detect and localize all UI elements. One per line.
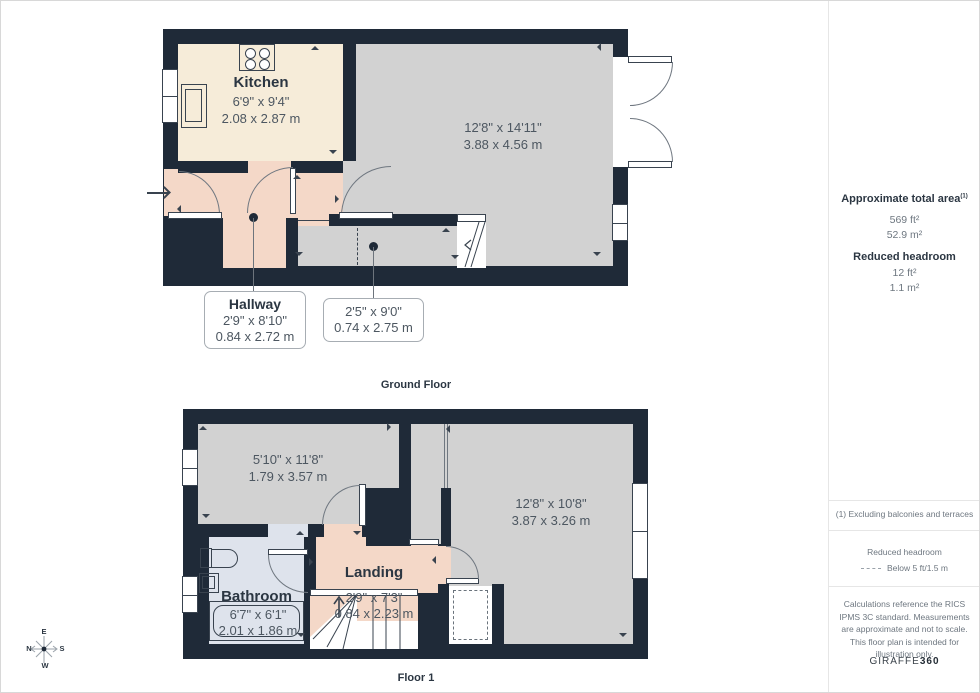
compass-top: E — [38, 627, 50, 636]
cupboard-wall-left — [438, 584, 449, 659]
cupboard-wall-right — [492, 584, 504, 659]
tick — [353, 531, 361, 535]
floorplan-page: Kitchen 6'9" x 9'4" 2.08 x 2.87 m 12'8" … — [0, 0, 980, 693]
tick — [442, 228, 450, 232]
staircase-ground — [457, 214, 486, 268]
living-room-dims-imperial: 12'8" x 14'11" — [423, 119, 583, 136]
bathroom-name: Bathroom — [209, 588, 304, 605]
tick — [387, 423, 391, 431]
total-area-label: Approximate total area(1) — [828, 193, 980, 205]
living-room-door-leaf — [339, 212, 393, 219]
compass-left: N — [23, 644, 35, 653]
compass-right: S — [56, 644, 68, 653]
landing-name: Landing — [314, 564, 434, 581]
hallway-leader — [253, 218, 254, 291]
sidebar-divider-2 — [829, 530, 980, 531]
brand-name: GIRAFFE — [869, 656, 919, 667]
tick — [309, 558, 313, 566]
corridor-leader — [373, 247, 374, 298]
bedroom1-dims-imperial: 5'10" x 11'8" — [208, 451, 368, 468]
landing-dims-imperial: 2'9" x 7'3" — [314, 590, 434, 606]
kitchen-name: Kitchen — [191, 74, 331, 91]
bedroom2-dims-imperial: 12'8" x 10'8" — [471, 495, 631, 512]
hallway-dims-imperial: 2'9" x 8'10" — [223, 313, 287, 329]
tick — [202, 514, 210, 518]
bedroom1-dims-metric: 1.79 x 3.57 m — [208, 468, 368, 485]
reduced-headroom-m: 1.1 m² — [828, 282, 980, 294]
total-area-label-text: Approximate total area — [841, 193, 960, 205]
french-door-arc-top — [630, 62, 673, 106]
bathroom-window — [182, 576, 198, 613]
hob-icon — [239, 44, 275, 71]
french-door-opening — [613, 57, 628, 167]
bathroom-dims-imperial: 6'7" x 6'1" — [197, 607, 319, 623]
brand-number: 360 — [920, 656, 940, 667]
bedroom1-door-leaf — [359, 484, 366, 526]
pocket-wall — [441, 488, 451, 546]
giraffe360-logo: GIRAFFE360 — [828, 656, 980, 667]
corridor-dashed-line — [357, 228, 358, 265]
disclaimer-text: Calculations reference the RICS IPMS 3C … — [833, 598, 976, 661]
reduced-headroom-label: Reduced headroom — [828, 251, 980, 263]
tick — [329, 150, 337, 154]
tick — [293, 175, 301, 179]
reduced-headroom-area — [453, 590, 488, 640]
stair-pocket-floor — [411, 488, 441, 544]
total-area-ft: 569 ft² — [828, 214, 980, 226]
corridor-dims-imperial: 2'5" x 9'0" — [345, 304, 402, 320]
hallway-label-box: Hallway 2'9" x 8'10" 0.84 x 2.72 m — [204, 291, 306, 349]
french-door-leaf-bottom — [628, 161, 672, 168]
ground-floor-title: Ground Floor — [341, 379, 491, 391]
pocket-threshold — [409, 539, 439, 545]
tick — [597, 43, 601, 51]
hallway-name: Hallway — [229, 296, 281, 313]
dashed-line-swatch — [861, 568, 881, 569]
tick — [619, 633, 627, 637]
footnote-text: (1) Excluding balconies and terraces — [828, 509, 980, 519]
living-room-window — [612, 204, 628, 241]
living-room-dims-metric: 3.88 x 4.56 m — [423, 136, 583, 153]
front-door-leaf — [168, 212, 222, 219]
french-door-arc-bottom — [630, 118, 673, 162]
tick — [451, 255, 459, 259]
total-area-m: 52.9 m² — [828, 229, 980, 241]
floor1-title: Floor 1 — [341, 672, 491, 684]
legend-row: Below 5 ft/1.5 m — [828, 563, 980, 573]
hallway-dims-metric: 0.84 x 2.72 m — [216, 329, 295, 345]
tick — [335, 195, 339, 203]
total-area-footnote-ref: (1) — [960, 193, 967, 199]
bedroom1-window — [182, 449, 198, 486]
toilet-bowl-icon — [211, 549, 238, 568]
tick — [593, 252, 601, 256]
chimney-block — [366, 488, 411, 546]
tick — [446, 425, 450, 433]
tick — [177, 205, 181, 213]
tick — [311, 46, 319, 50]
landing-dims-metric: 0.84 x 2.23 m — [314, 606, 434, 622]
bathroom-dims-metric: 2.01 x 1.86 m — [197, 623, 319, 639]
glass-partition — [444, 424, 448, 488]
legend-value: Below 5 ft/1.5 m — [887, 563, 948, 573]
reduced-headroom-ft: 12 ft² — [828, 267, 980, 279]
tick — [295, 252, 303, 256]
bedroom2-dims-metric: 3.87 x 3.26 m — [471, 512, 631, 529]
tick — [199, 426, 207, 430]
corridor-dims-metric: 0.74 x 2.75 m — [334, 320, 413, 336]
legend-title: Reduced headroom — [828, 547, 980, 557]
tick — [432, 556, 436, 564]
bedroom2-window — [632, 483, 648, 579]
tick — [296, 531, 304, 535]
corridor-threshold-line — [298, 220, 329, 221]
sidebar-divider-1 — [829, 500, 980, 501]
hallway-floor-lower — [223, 218, 286, 268]
corridor-label-box: 2'5" x 9'0" 0.74 x 2.75 m — [323, 298, 424, 342]
sidebar-vertical-divider — [828, 1, 829, 693]
compass-bottom: W — [39, 661, 51, 670]
kitchen-window — [162, 69, 178, 123]
sidebar-divider-3 — [829, 586, 980, 587]
kitchen-sink-basin — [185, 89, 202, 122]
